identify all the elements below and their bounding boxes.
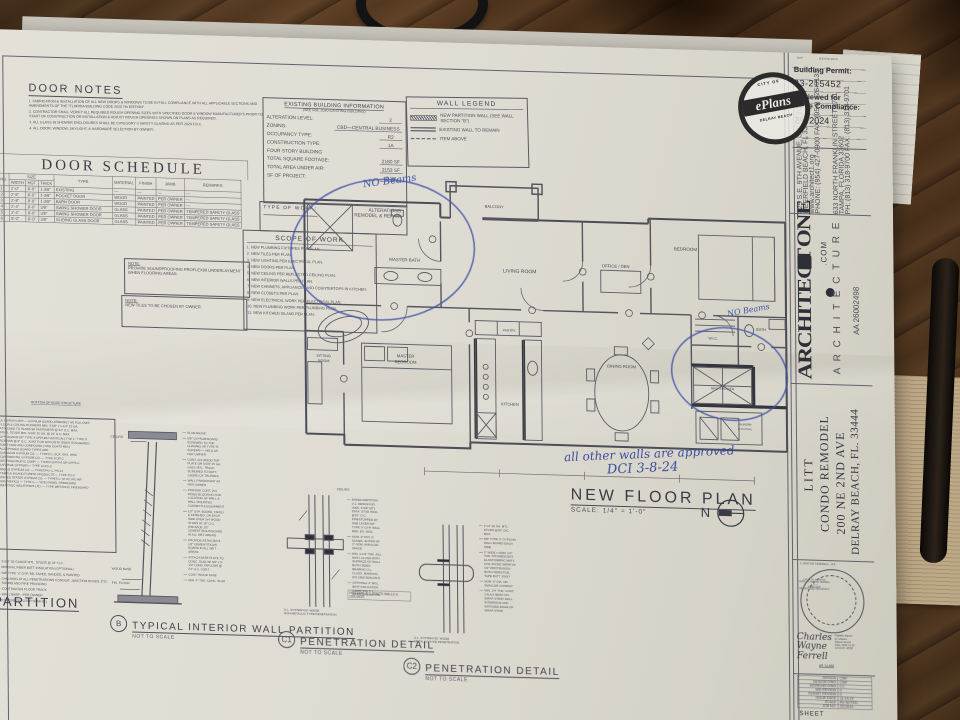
sheet-number-section: SHEET A-2.1 — [799, 711, 864, 720]
detail-b-callout: CONT. WOOD BASE — [184, 572, 226, 577]
project-line2: 200 NE 2ND AVE — [833, 431, 849, 534]
detail-c2-callout: NOM. 6" DIA. OR SMALLER CONDUIT — [479, 579, 517, 588]
detail-c2-tag: C2 — [403, 658, 420, 676]
svg-text:BEDROOM: BEDROOM — [395, 359, 417, 365]
door-notes-title: DOOR NOTES — [28, 82, 122, 99]
room-labels: BALCONY MASTER BATH LIVING ROOM OFFICE /… — [315, 199, 767, 432]
note-box-1: NOTE: PROVIDE SOUNDPROOFING PROFLEX90 UN… — [124, 258, 250, 298]
door-schedule-table: NO. SIZE TYPE MATERIAL FINISH JAMB REMAR… — [0, 173, 242, 229]
florida-seal: STATE OF FLORIDA CHARLES WAYNE FERRELL —… — [800, 568, 865, 634]
fixtures — [306, 203, 786, 447]
penetration-graphic-1 — [283, 490, 346, 612]
signature: Charles Wayne Ferrell — [797, 633, 832, 662]
detail-b-callout: ATTACH BASE PLATE TO CONC. SLAB W/ 5/8" … — [183, 555, 225, 572]
door-swings — [381, 238, 734, 343]
detail-b-callout: PROVIDE ASTM D3273 1/2" CEMENTITIOUS BOA… — [183, 538, 225, 555]
existing-wall-symbol — [411, 127, 436, 132]
detail-b-callout: 5/8" GYPSUM BOARD SCREWED TO TOP CHANNEL… — [182, 436, 224, 457]
detail-c1-callout: MIN. 1-1/4" THK. FILL MAT'L FLUSH WITH S… — [347, 552, 382, 580]
note-text: PROVIDE SOUNDPROOFING PROFLEX90 UNDERLAY… — [128, 266, 246, 279]
detail-c1-callout: RATED PARTITION U.L. DESIGN NO. U305, 3-… — [347, 498, 382, 534]
new-partition-walls — [475, 339, 787, 448]
title-block: REVISIONS DATE Building Permit: 23-21545… — [788, 53, 877, 720]
new-wall-symbol — [410, 115, 437, 121]
project-section: LITT CONDO REMODEL 200 NE 2ND AVE DELRAY… — [791, 383, 875, 563]
detail-b-callout: 1/2" GYP. BOARD, TAPED & FINISHED, ON EA… — [183, 509, 225, 538]
photo-scene: DOOR NOTES 1. FABRICATION & INSTALLATION… — [0, 0, 960, 720]
detail-b-callout: WALL FINISH/PAINT AS PER OWNER — [183, 479, 225, 488]
room-label-shower: NEW SHOWER — [711, 387, 735, 392]
room-label-balcony: BALCONY — [485, 204, 504, 210]
room-label-bath: BATH — [756, 328, 766, 332]
room-label-pantry: PANTRY — [503, 328, 517, 332]
detail-b-callout: PROVIDE CONT. 2x4 WOOD BLOCKING FOR LOCA… — [183, 488, 225, 509]
room-label-master-bedroom: MASTER — [397, 353, 414, 359]
detail-b: CEILING WOOD BASE FIN. FLOOR SLAB ABOVE … — [110, 429, 288, 620]
detail-c1-callout: NOM. 2" PVC O SCHED. 40 PIPE W/ 1" NOM. … — [347, 535, 382, 552]
firm-license: AA 26002498 — [850, 130, 861, 335]
detail-c2-title: C2PENETRATION DETAIL NOT TO SCALE — [403, 658, 560, 687]
detail-b-callout: MIN. 4" THK. CONC. SLAB — [184, 578, 226, 583]
room-label-wic: W.I.C. — [708, 336, 718, 340]
wall-legend-title: WALL LEGEND — [410, 99, 524, 109]
room-label-laundry: LAUNDRY — [738, 422, 752, 426]
architect-name-small: C.WAYNE FERRELL, RA — [800, 562, 880, 567]
detail-c2-callout: 5/8" TYPE 'X' GYPSUM WALL BOARD EACH SID… — [479, 537, 517, 550]
interior-walls — [304, 208, 787, 451]
info-row: JOB NO.2023016 — [798, 704, 872, 710]
sheet-label: SHEET — [799, 711, 864, 719]
blueprint-sheet: DOOR NOTES 1. FABRICATION & INSTALLATION… — [0, 28, 898, 720]
legend-entry: EXISTING WALL TO REMAIN — [410, 127, 524, 134]
room-label-dining: DINING ROOM — [607, 363, 636, 369]
room-label-living: LIVING ROOM — [503, 268, 536, 275]
roof-structure-label: BOTTOM OF ROOF STRUCTURE — [31, 400, 81, 405]
digital-signature: Digitally signed by Charles Wayne Ferrel… — [835, 634, 871, 651]
detail-c2-callout: 2"x4" 25 GA. MTL. STUDS @24" O/C. MAX. — [479, 524, 517, 537]
item-above-symbol — [411, 138, 436, 140]
logo-block-icon — [797, 255, 811, 269]
north-arrow: N — [701, 496, 747, 529]
detail-c2-callout: MIN. 1/4" THK. CONT. CAULK BEAD ON WRAP … — [480, 589, 519, 614]
logo-architecture: A R C H I T E C T U R E — [831, 220, 843, 374]
firm-logo-section: ARCHITECT ONE .COM A R C H I T E C T U R… — [789, 213, 872, 387]
ul-assembly-notes: BOTTOM OF ROOF STRUCTURE UL DESIGN U465 … — [0, 399, 118, 674]
detail-c2: 2"x4" 25 GA. MTL. STUDS @24" O/C. MAX. 5… — [413, 522, 579, 659]
note-text: NEW TILES TO BE CHOSEN BY OWNER. — [125, 303, 243, 311]
svg-text:ROOM: ROOM — [318, 359, 330, 363]
room-label-sitting: SITTING — [316, 354, 331, 358]
north-compass-icon — [714, 497, 746, 530]
room-label-laundry-sub: (EXISTING) — [738, 427, 752, 431]
balcony — [446, 182, 542, 221]
detail-b-tag: B — [110, 615, 127, 633]
detail-b-callout: CONT. 2x4 WOOD TOP PLATE OR 3-5/8" 25 GA… — [183, 457, 225, 478]
penetration-graphic-2 — [413, 522, 480, 636]
door-note: 4. ALL DOOR, WINDOW, SKYLIGHT, & HARDWAR… — [29, 126, 265, 133]
detail-c1-tag: C1 — [278, 631, 295, 649]
ar-number: AR 14,855 — [819, 664, 901, 670]
architect-section: C.WAYNE FERRELL, RA STATE OF FLORIDA CHA… — [792, 559, 875, 677]
wall-legend-box: WALL LEGEND NEW PARTITION WALL (SEE WALL… — [406, 96, 530, 168]
project-client: LITT — [801, 457, 816, 491]
project-line1: CONDO REMODEL — [817, 415, 833, 532]
legend-entry: ITEM ABOVE — [411, 136, 525, 143]
room-label-office: OFFICE / DEN — [602, 263, 630, 269]
no-beams-note-left: NO Beams — [361, 173, 417, 191]
room-label-master-bath: MASTER BATH — [389, 257, 420, 263]
detail-b-callout: SLAB ABOVE — [182, 431, 224, 436]
note-box-2: NOTE: NEW TILES TO BE CHOSEN BY OWNER. — [121, 295, 247, 331]
legend-entry: NEW PARTITION WALL (SEE WALL SECTION "B"… — [410, 112, 524, 124]
firetape-note: FIRETAPE ALL JOINTS WALLS & CEILINGS — [348, 590, 411, 601]
detail-c2-callout: 2" WIDE x NOM. 1/4" THK. INTUMESCENT ELA… — [479, 550, 518, 578]
room-label-bedroom: BEDROOM — [674, 246, 698, 252]
detail-c1-title: C1PENETRATION DETAIL NOT TO SCALE — [278, 631, 435, 660]
room-label-kitchen: KITCHEN — [501, 401, 519, 407]
project-line3: DELRAY BEACH, FL. 33444 — [849, 409, 862, 556]
logo-one: ONE — [793, 200, 815, 248]
north-label: N — [701, 505, 711, 520]
logo-com: .COM — [819, 241, 828, 266]
